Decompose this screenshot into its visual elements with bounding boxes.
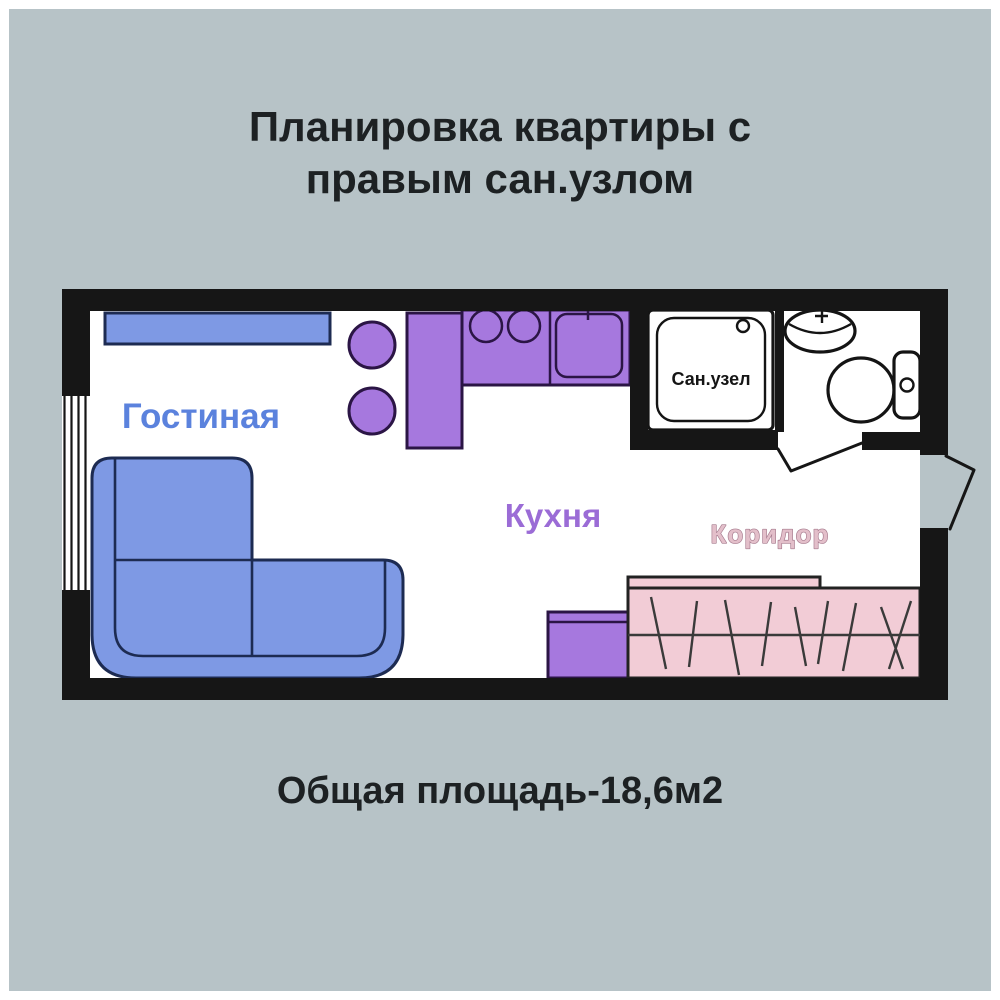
- bathroom-bottom-wall-right: [862, 432, 920, 450]
- corridor-label: Коридор: [711, 519, 830, 549]
- wardrobe: [628, 577, 920, 678]
- toilet: [828, 352, 920, 422]
- bathroom-sink: [785, 310, 855, 352]
- counter-top: [462, 310, 630, 385]
- wardrobe-body: [628, 588, 920, 678]
- bathroom-label: Сан.узел: [671, 369, 750, 389]
- dining-table: [407, 313, 462, 448]
- wall-right-upper: [920, 289, 948, 455]
- total-area-label: Общая площадь-18,6м2: [0, 770, 1000, 813]
- wall-right-lower: [920, 528, 948, 700]
- stool: [349, 388, 395, 434]
- kitchen-counter: [462, 310, 630, 385]
- bathroom-partition-wall: [775, 310, 784, 432]
- wall-bottom: [62, 678, 948, 700]
- stool: [349, 322, 395, 368]
- toilet-bowl: [828, 358, 894, 422]
- living-room-label: Гостиная: [122, 397, 280, 436]
- wall-left-upper: [62, 289, 90, 396]
- bathroom-bottom-wall-left: [630, 430, 778, 450]
- floor-plan: Гостиная Кухня Коридор Сан.узел: [0, 0, 1000, 1000]
- window-icon: [62, 396, 90, 590]
- poster: Планировка квартиры с правым сан.узлом: [0, 0, 1000, 1000]
- kitchen-label: Кухня: [505, 497, 601, 534]
- wall-left-lower: [62, 590, 90, 700]
- wall-top: [62, 289, 948, 311]
- entrance-door-swing: [946, 456, 974, 529]
- kitchen-cabinet: [548, 612, 630, 678]
- toilet-tank: [894, 352, 920, 418]
- tv-stand: [105, 313, 330, 344]
- bathroom-left-wall: [630, 310, 648, 450]
